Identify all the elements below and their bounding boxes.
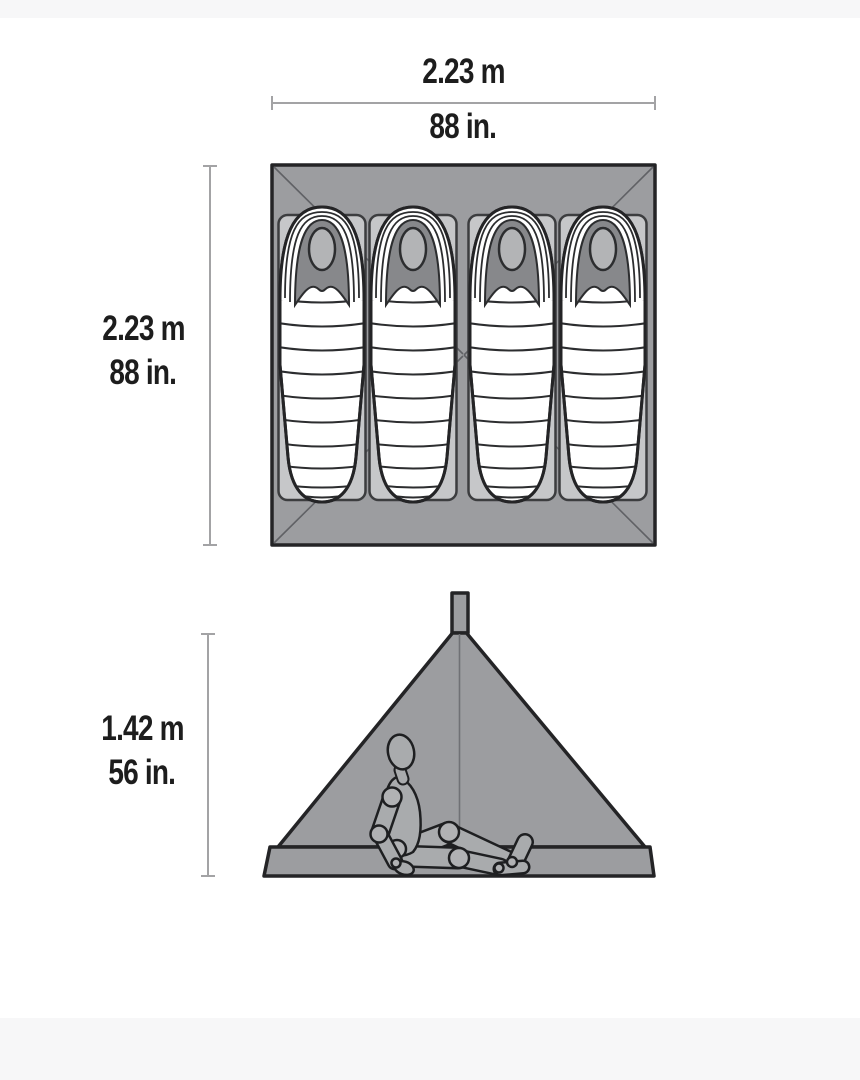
height-label-metric: 1.42 m xyxy=(32,711,252,748)
ankle-joint xyxy=(507,857,517,867)
height-label-imperial: 56 in. xyxy=(32,755,252,792)
sleeping-bag-2 xyxy=(369,207,457,502)
peak-vent xyxy=(452,593,468,633)
width-label-metric: 2.23 m xyxy=(353,54,573,91)
floor-plan-top-view xyxy=(272,165,655,545)
wrist-joint xyxy=(392,859,401,868)
width-label-imperial: 88 in. xyxy=(353,109,573,146)
sleeping-bag-3 xyxy=(468,207,556,502)
tent-dimension-diagram xyxy=(0,0,860,1080)
shoulder-joint xyxy=(383,788,402,807)
tent-spec-sheet: 2.23 m 88 in. 2.23 m 88 in. 1.42 m 56 in… xyxy=(0,0,860,1080)
knee-joint xyxy=(439,822,459,842)
elbow-joint xyxy=(371,826,388,843)
knee-joint xyxy=(449,848,469,868)
sleeping-bag-4 xyxy=(559,207,647,502)
depth-label-imperial: 88 in. xyxy=(33,355,253,392)
sleeping-bag-1 xyxy=(278,207,366,502)
ankle-joint xyxy=(495,864,504,873)
tent-wall-triangle xyxy=(278,633,645,847)
side-elevation-view xyxy=(264,593,654,877)
depth-label-metric: 2.23 m xyxy=(33,311,253,348)
